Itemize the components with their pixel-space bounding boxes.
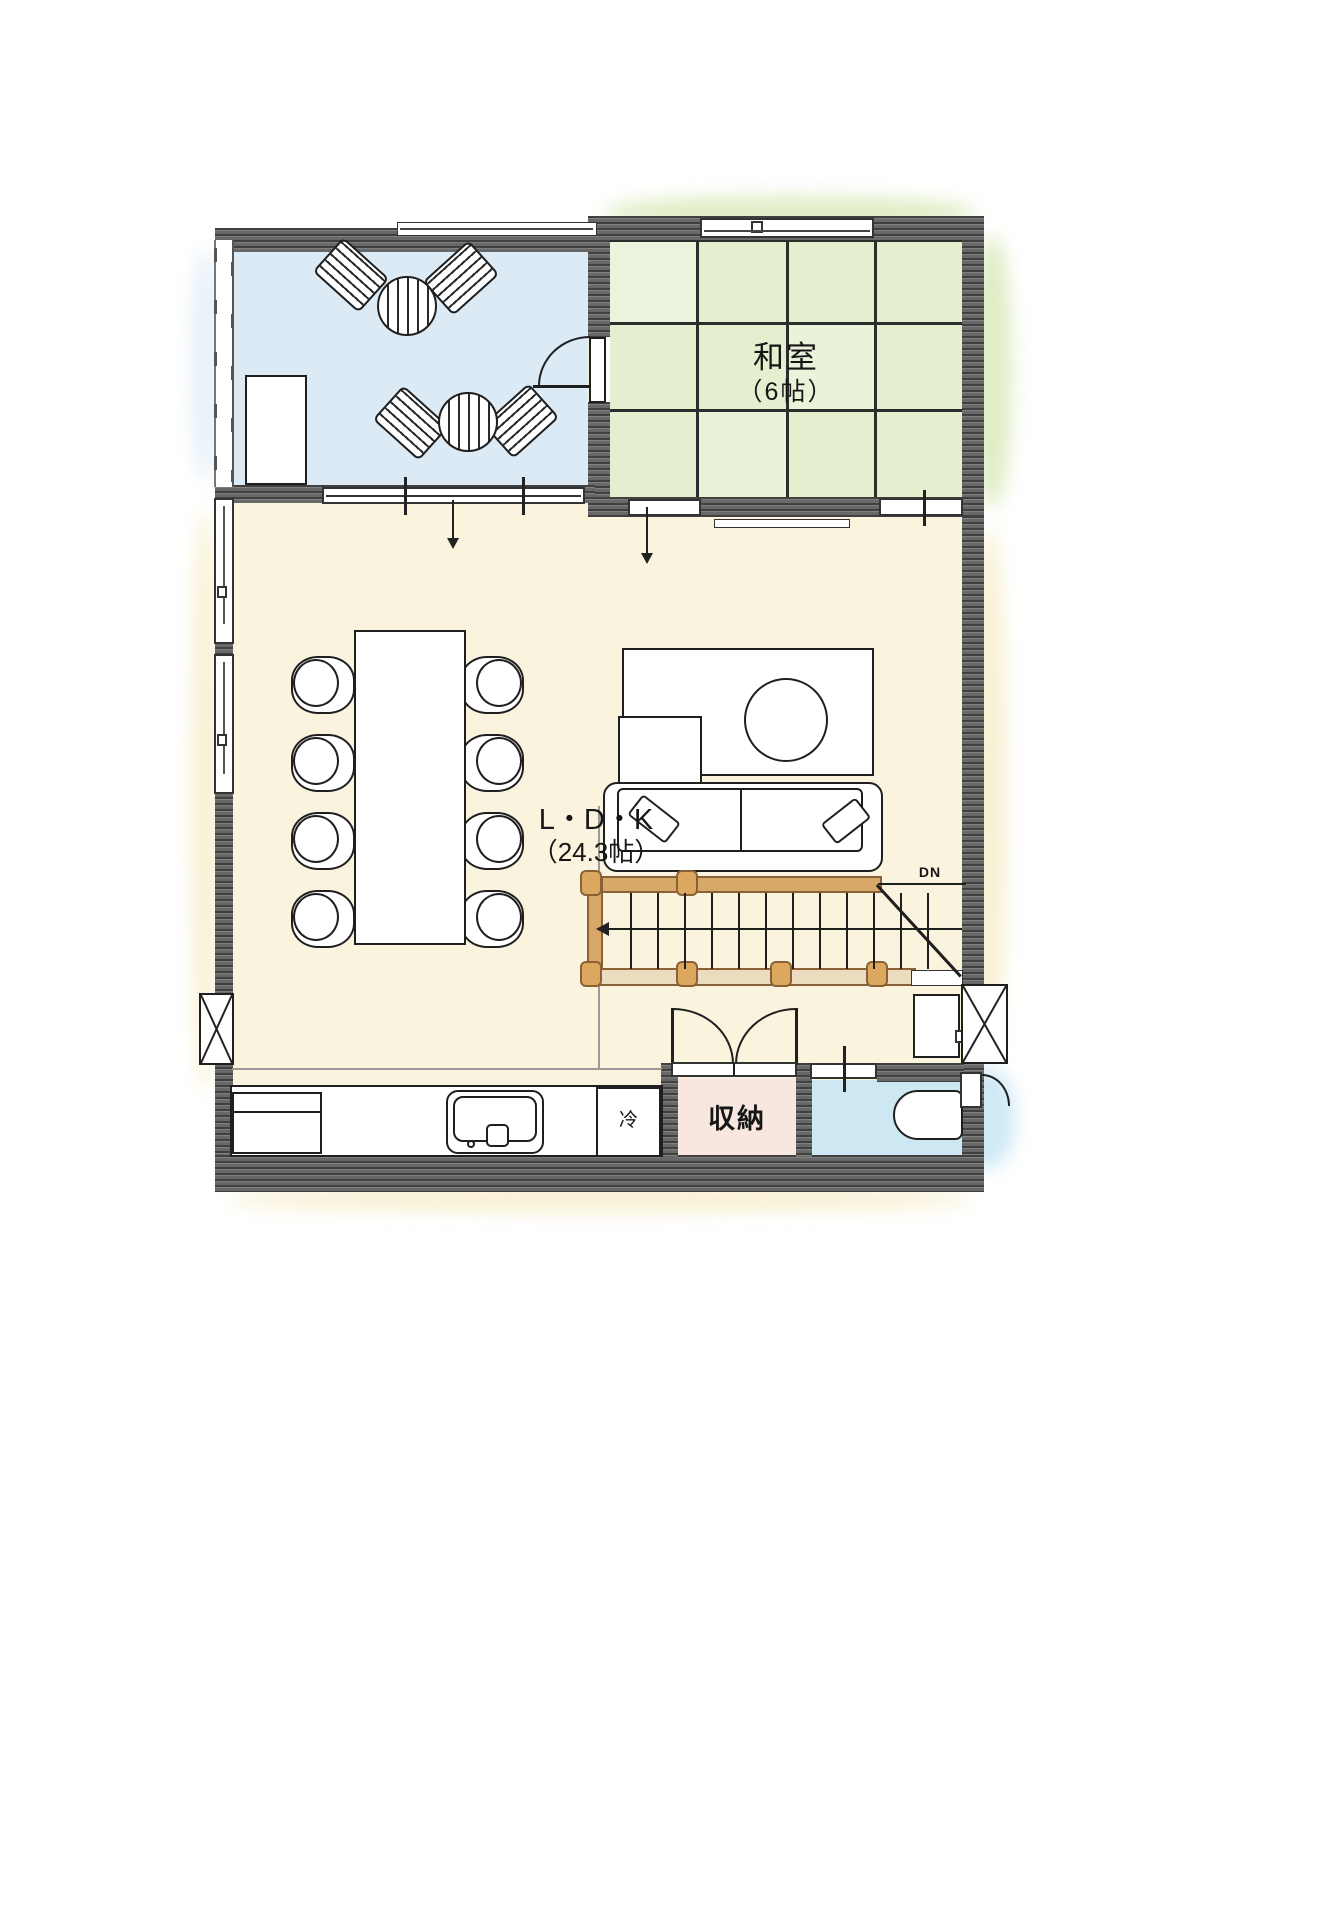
washitsu-label: 和室 （6帖） [686, 340, 886, 406]
chair-seat [476, 893, 522, 941]
stair-tread [630, 893, 632, 969]
stair-tread [657, 893, 659, 969]
stair-newel-post [676, 870, 698, 896]
wall-bath-top [877, 1063, 964, 1082]
terrace-table [438, 392, 498, 452]
stair-tread [900, 893, 902, 969]
terrace-sliding-door-rail [326, 495, 581, 497]
washitsu-size: （6帖） [686, 378, 886, 407]
ldk-label: L・D・K （24.3帖） [506, 804, 686, 868]
tatami-grid-line-h [610, 240, 962, 242]
wall-terrace-washitsu-divider-upper [588, 240, 610, 337]
entry-door-panel [913, 994, 960, 1058]
washitsu-sliding-door-right [879, 498, 963, 516]
dining-table [354, 630, 466, 945]
opening-tick [923, 490, 926, 526]
dining-chair [291, 812, 355, 870]
faucet [486, 1124, 509, 1147]
stair-tread [792, 893, 794, 969]
stair-tread [873, 893, 875, 969]
tatami-grid-line-h [610, 409, 962, 412]
chair-seat [293, 737, 339, 785]
storage-door-threshold-divider [733, 1063, 735, 1076]
bathtub [893, 1090, 963, 1140]
dining-chair [291, 656, 355, 714]
washitsu-sliding-door-left [628, 499, 701, 516]
direction-arrow [646, 507, 648, 555]
stair-direction-line [604, 928, 962, 930]
dn-label: DN [912, 864, 948, 880]
stair-newel-post [580, 870, 602, 896]
chair-seat [476, 737, 522, 785]
refrigerator-label: 冷 [596, 1110, 661, 1132]
chair-seat [293, 893, 339, 941]
sofa-seat-divider [740, 790, 742, 850]
sink-knob [467, 1140, 475, 1148]
terrace-top-window-mullion [400, 228, 593, 230]
floor-cushion [618, 716, 702, 784]
chair-seat [293, 659, 339, 707]
stair-newel-post [676, 961, 698, 987]
dining-chair [291, 734, 355, 792]
stair-newel-post [580, 961, 602, 987]
stair-tread [711, 893, 713, 969]
cross-brace-icon [199, 993, 234, 1065]
cooktop [232, 1092, 322, 1154]
stair-tread [738, 893, 740, 969]
direction-arrow-head [447, 538, 459, 549]
wall-bottom [215, 1155, 984, 1192]
washitsu-step-ledge [714, 519, 850, 528]
dining-chair [460, 890, 524, 948]
washitsu-top-window [700, 218, 874, 238]
terrace-table [377, 276, 437, 336]
stair-newel-post [770, 961, 792, 987]
wall-storage-left [661, 1063, 678, 1158]
window-glass-line [223, 506, 225, 624]
terrace-cabinet [245, 375, 307, 485]
cooktop-divider [234, 1111, 320, 1113]
storage-label: 収納 [678, 1104, 796, 1135]
stair-tread [684, 893, 686, 969]
wall-terrace-washitsu-divider-lower [588, 402, 610, 497]
terrace-door-leaf [589, 337, 606, 403]
glass-dash [214, 248, 217, 480]
window-handle [217, 734, 227, 746]
chair-seat [476, 659, 522, 707]
stair-direction-arrow-head [596, 922, 609, 936]
kitchen-zone-line-h [232, 1068, 662, 1070]
floor-plan: DN 冷 和室 （6帖） L・D・K （24.3帖） 収納 [0, 0, 1330, 1920]
opening-tick [404, 477, 407, 515]
stair-tread [846, 893, 848, 969]
chair-seat [293, 815, 339, 863]
tatami-grid-line-h [610, 322, 962, 325]
window-handle [217, 586, 227, 598]
stair-handrail-top [586, 876, 882, 893]
window-glass-line [223, 662, 225, 774]
bathroom-exterior-door [960, 1072, 982, 1108]
round-table [744, 678, 828, 762]
ldk-name: L・D・K [506, 804, 686, 837]
opening-tick [522, 477, 525, 515]
washitsu-top-window-mullion [704, 230, 870, 232]
dining-chair [460, 734, 524, 792]
direction-arrow-head [641, 553, 653, 564]
stair-tread [765, 893, 767, 969]
dining-chair [291, 890, 355, 948]
dining-chair [460, 656, 524, 714]
ldk-size: （24.3帖） [506, 838, 686, 868]
tatami-mat-highlight [697, 409, 786, 497]
opening-tick [843, 1046, 846, 1092]
stair-newel-post [866, 961, 888, 987]
stair-dn-line [878, 883, 966, 885]
cross-brace-icon [961, 984, 1008, 1064]
tatami-mat-highlight [610, 238, 696, 322]
stair-tread [927, 893, 929, 969]
glass-dash [231, 262, 234, 482]
stair-tread [819, 893, 821, 969]
washitsu-name: 和室 [686, 340, 886, 376]
direction-arrow [452, 500, 454, 540]
